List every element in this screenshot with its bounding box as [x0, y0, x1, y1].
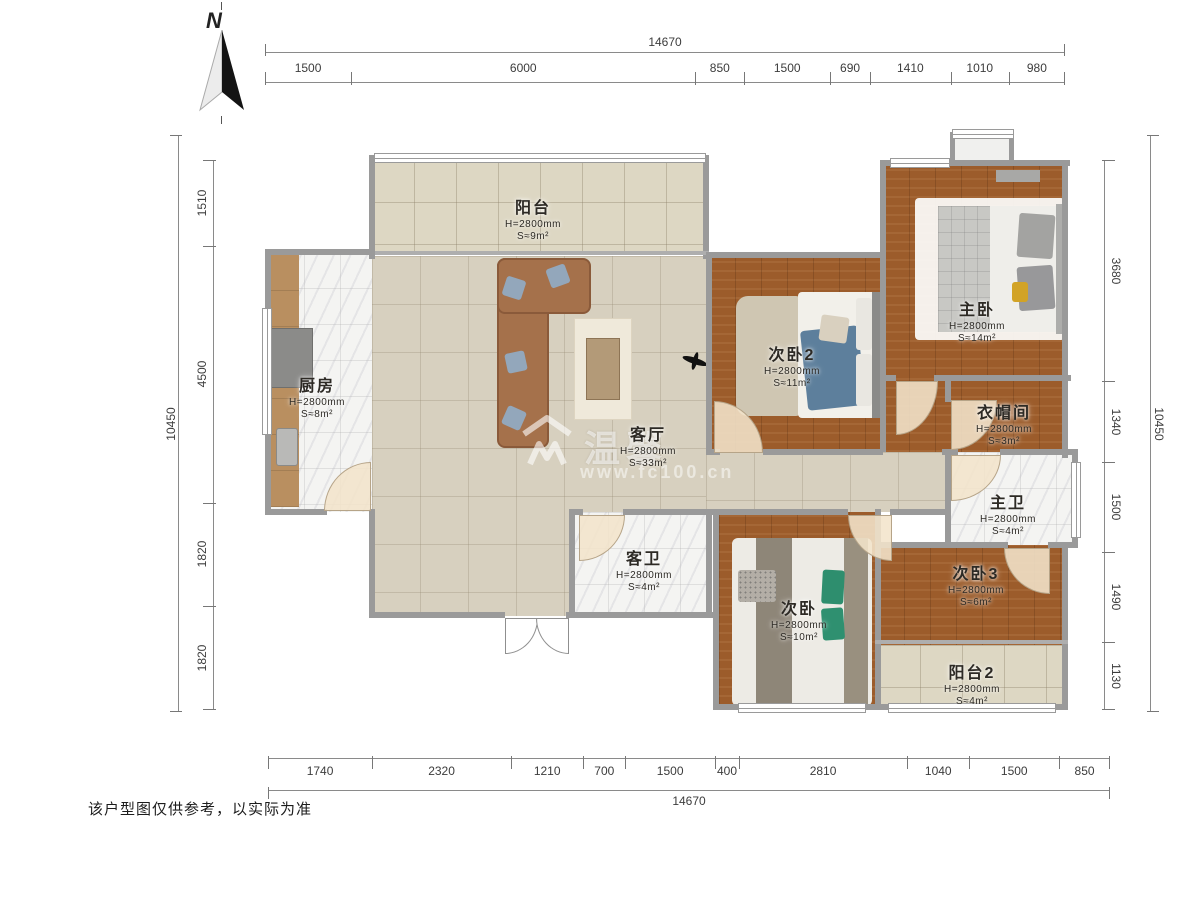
window — [262, 308, 272, 435]
dim-segment-label: 3680 — [1109, 257, 1123, 284]
wall — [763, 449, 883, 455]
dim-segment: 1130 — [1105, 642, 1127, 710]
window — [890, 158, 950, 168]
wall — [569, 509, 575, 618]
dim-segment-label: 850 — [695, 61, 744, 75]
wall — [1062, 548, 1068, 710]
dim-segment: 1500 — [744, 62, 830, 82]
wall — [1062, 160, 1068, 458]
dim-segment-label: 2810 — [739, 764, 907, 778]
north-axis-line — [221, 116, 222, 124]
dim-segment: 1490 — [1105, 552, 1127, 642]
room-label-balcony: 阳台 H=2800mm S≈9m² — [505, 194, 561, 242]
disclaimer-text: 该户型图仅供参考，以实际为准 — [88, 798, 312, 819]
dim-segment: 1500 — [1105, 462, 1127, 552]
room-label-living: 客厅 H=2800mm S≈33m² — [620, 421, 676, 469]
dim-segment-label: 1500 — [969, 764, 1059, 778]
room-area: S≈8m² — [289, 409, 345, 420]
room-name: 主卫 — [980, 489, 1036, 513]
room-name: 衣帽间 — [976, 399, 1032, 423]
master-yellow-cushion — [1012, 282, 1028, 302]
dim-segment: 850 — [695, 62, 744, 82]
wall — [369, 251, 709, 255]
room-name: 客卫 — [616, 545, 672, 569]
room-label-bedroom3: 次卧3 H=2800mm S≈6m² — [948, 560, 1004, 608]
compass-needle — [192, 30, 252, 114]
dim-segment: 2320 — [372, 759, 511, 781]
dim-segment: 1500 — [969, 759, 1059, 781]
room-area: S≈11m² — [764, 378, 820, 389]
room-height: H=2800mm — [616, 570, 672, 581]
wall — [934, 375, 1071, 381]
dim-segment-label: 400 — [715, 764, 739, 778]
wall — [265, 249, 375, 255]
dim-segment: 1010 — [951, 62, 1009, 82]
dim-segment: 1820 — [191, 606, 213, 710]
wall — [369, 509, 375, 616]
room-height: H=2800mm — [620, 446, 676, 457]
dim-segment-label: 1410 — [870, 61, 951, 75]
room-name: 阳台2 — [944, 659, 1000, 683]
dim-segment-label: 1500 — [1109, 494, 1123, 521]
north-arrow-icon: N — [178, 2, 268, 124]
room-area: S≈4m² — [616, 582, 672, 593]
wall — [623, 509, 715, 515]
dim-segment-label: 1500 — [625, 764, 715, 778]
room-label-bedroom2: 次卧2 H=2800mm S≈11m² — [764, 341, 820, 389]
dim-segment-label: 1820 — [195, 645, 209, 672]
room-name: 次卧 — [771, 595, 827, 619]
dim-segment: 690 — [830, 62, 870, 82]
dim-segment-label: 6000 — [351, 61, 695, 75]
room-area: S≈33m² — [620, 458, 676, 469]
dim-segment-label: 700 — [583, 764, 625, 778]
dim-segment: 850 — [1059, 759, 1110, 781]
wall — [875, 640, 1068, 644]
dim-segment-label: 850 — [1059, 764, 1110, 778]
room-height: H=2800mm — [289, 397, 345, 408]
dim-segment: 1820 — [191, 503, 213, 607]
wall — [703, 155, 709, 259]
floor-corridor — [706, 452, 948, 512]
room-label-kitchen: 厨房 H=2800mm S≈8m² — [289, 372, 345, 420]
kitchen-sink — [276, 428, 298, 466]
dim-segment-label: 1340 — [1109, 408, 1123, 435]
room-label-cloakroom: 衣帽间 H=2800mm S≈3m² — [976, 399, 1032, 447]
sofa-pillow — [504, 350, 528, 374]
master-pillow — [1017, 213, 1056, 259]
window — [374, 153, 706, 163]
room-name: 次卧2 — [764, 341, 820, 365]
bedroom2-headboard — [872, 292, 880, 418]
dim-segment-label: 1510 — [195, 190, 209, 217]
room-area: S≈10m² — [771, 632, 827, 643]
room-height: H=2800mm — [976, 424, 1032, 435]
dim-segment: 980 — [1009, 62, 1065, 82]
wall — [706, 509, 712, 618]
wall — [880, 256, 886, 452]
entrance-door-left — [505, 618, 538, 654]
wall — [1048, 542, 1078, 548]
room-area: S≈4m² — [944, 696, 1000, 707]
dim-segment-label: 1210 — [511, 764, 583, 778]
room-label-balcony2: 阳台2 H=2800mm S≈4m² — [944, 659, 1000, 707]
dim-segment-label: 1500 — [265, 61, 351, 75]
dim-bottom-segments: 1740232012107001500400281010401500850 — [268, 758, 1110, 781]
room-name: 厨房 — [289, 372, 345, 396]
room-area: S≈6m² — [948, 597, 1004, 608]
dim-top-segments: 15006000850150069014101010980 — [265, 62, 1065, 83]
dim-segment-label: 1490 — [1109, 584, 1123, 611]
room-height: H=2800mm — [505, 219, 561, 230]
dim-total-label: 14670 — [268, 794, 1110, 808]
dim-bottom-total: 14670 — [268, 790, 1110, 809]
dim-segment-label: 690 — [830, 61, 870, 75]
room-name: 次卧3 — [948, 560, 1004, 584]
dim-segment-label: 2320 — [372, 764, 511, 778]
room-name: 客厅 — [620, 421, 676, 445]
wall — [890, 509, 948, 515]
room-label-masterbath: 主卫 H=2800mm S≈4m² — [980, 489, 1036, 537]
dim-segment: 2810 — [739, 759, 907, 781]
room-area: S≈14m² — [949, 333, 1005, 344]
room-area: S≈3m² — [976, 436, 1032, 447]
dim-segment-label: 1130 — [1109, 663, 1123, 689]
room-name: 阳台 — [505, 194, 561, 218]
dim-segment: 400 — [715, 759, 739, 781]
wall — [566, 612, 714, 618]
window — [738, 703, 866, 713]
dim-segment: 1340 — [1105, 381, 1127, 462]
room-height: H=2800mm — [944, 684, 1000, 695]
dim-right-total: 10450 — [1150, 135, 1166, 712]
dim-segment: 6000 — [351, 62, 695, 82]
dim-total-label: 10450 — [1152, 407, 1166, 440]
dim-left-segments: 1510450018201820 — [191, 160, 214, 710]
dim-total-label: 14670 — [265, 35, 1065, 49]
room-height: H=2800mm — [771, 620, 827, 631]
wall — [369, 612, 505, 618]
wall — [1000, 449, 1078, 455]
bedroom2-pillow — [818, 314, 849, 344]
dim-segment: 1040 — [907, 759, 969, 781]
room-height: H=2800mm — [949, 321, 1005, 332]
dim-segment-label: 1500 — [744, 61, 830, 75]
bedroom-runner — [844, 538, 868, 706]
floorplan-canvas: 温馨 www.fc100.cn — [0, 0, 1200, 900]
dim-segment: 4500 — [191, 246, 213, 502]
room-height: H=2800mm — [764, 366, 820, 377]
watermark-logo-icon — [520, 414, 574, 468]
room-height: H=2800mm — [980, 514, 1036, 525]
dim-right-segments: 36801340150014901130 — [1104, 160, 1127, 710]
master-dresser — [996, 170, 1040, 182]
dim-segment: 1210 — [511, 759, 583, 781]
entrance-door-right — [536, 618, 569, 654]
dim-segment: 1510 — [191, 160, 213, 246]
room-label-master: 主卧 H=2800mm S≈14m² — [949, 296, 1005, 344]
dim-top-total: 14670 — [265, 37, 1065, 53]
dim-segment: 1740 — [268, 759, 372, 781]
dim-segment-label: 1010 — [951, 61, 1009, 75]
dim-segment: 1410 — [870, 62, 951, 82]
dim-segment-label: 4500 — [195, 361, 209, 388]
room-area: S≈9m² — [505, 231, 561, 242]
window — [1071, 462, 1081, 538]
wall — [706, 252, 886, 258]
room-height: H=2800mm — [948, 585, 1004, 596]
dim-total-label: 10450 — [164, 407, 178, 440]
wall — [713, 509, 848, 515]
wall — [706, 256, 712, 452]
wall — [369, 155, 375, 259]
wall — [880, 163, 886, 262]
wall — [713, 509, 719, 710]
wall — [880, 375, 896, 381]
dim-segment-label: 1040 — [907, 764, 969, 778]
wall — [265, 509, 327, 515]
bedroom2-pillow — [856, 354, 872, 406]
bedroom2-pillow — [856, 298, 872, 350]
room-name: 主卧 — [949, 296, 1005, 320]
dim-segment-label: 1740 — [268, 764, 372, 778]
dim-segment: 3680 — [1105, 160, 1127, 381]
room-label-bedroom: 次卧 H=2800mm S≈10m² — [771, 595, 827, 643]
dim-segment-label: 980 — [1009, 61, 1065, 75]
wall — [875, 542, 1008, 548]
window — [952, 129, 1014, 139]
room-label-guestbath: 客卫 H=2800mm S≈4m² — [616, 545, 672, 593]
coffee-table — [586, 338, 620, 400]
dim-segment: 1500 — [625, 759, 715, 781]
room-area: S≈4m² — [980, 526, 1036, 537]
dim-segment-label: 1820 — [195, 541, 209, 568]
dim-segment: 700 — [583, 759, 625, 781]
dim-left-total: 10450 — [163, 135, 179, 712]
dim-segment: 1500 — [265, 62, 351, 82]
